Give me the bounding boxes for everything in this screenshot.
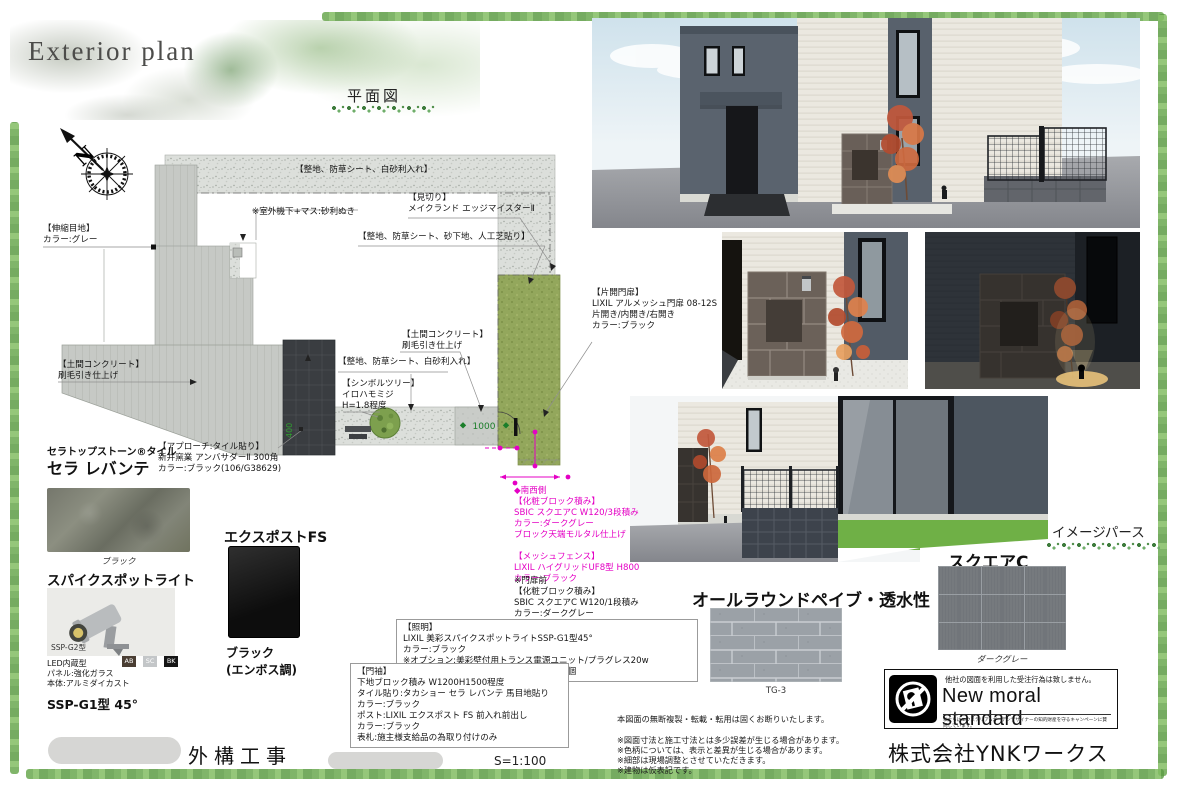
symbol-tree xyxy=(370,408,400,438)
finish-chip-sc: SC xyxy=(143,656,157,667)
company-name: 株式会社YNKワークス xyxy=(888,738,1109,768)
annotation-concrete-left: 【土間コンクリート】 刷毛引き仕上げ xyxy=(58,360,144,382)
render-gate-day xyxy=(722,232,908,389)
render-side-yard xyxy=(630,396,1048,562)
plan-view-label: 平面図 xyxy=(347,85,401,106)
annotation-edging: 【見切り】 メイクランド エッジマイスターⅡ xyxy=(408,193,535,215)
perspective-label: イメージパース xyxy=(1052,521,1145,541)
finish-chip-bk: BK xyxy=(164,656,178,667)
frame-bottom xyxy=(26,769,1164,779)
compass-icon: N xyxy=(55,126,155,208)
postbox-color: ブラック (エンボス調) xyxy=(226,644,297,678)
redacted-client-name xyxy=(48,737,181,764)
annotation-turf: 【整地、防草シート、砂下地、人工芝貼り】 xyxy=(358,232,530,243)
exterior-plan-sheet: Exterior plan 平面図 N xyxy=(0,0,1183,803)
spotlight-name: スパイクスポットライト xyxy=(47,569,195,589)
paver-name: オールラウンドペイブ・透水性 xyxy=(692,586,930,611)
tile-color-caption: ブラック xyxy=(47,555,190,567)
project-title: 外構工事 xyxy=(188,740,292,769)
redacted-address xyxy=(328,752,443,769)
no-copy-icon xyxy=(889,675,937,723)
frame-left xyxy=(10,122,19,774)
annotation-expansion-joint: 【伸縮目地】 カラー:グレー xyxy=(43,224,97,246)
annotation-gravel-center: 【整地、防草シート、白砂利入れ】 xyxy=(338,357,475,368)
spotlight-finish-chips: AB SC BK xyxy=(122,656,180,675)
moral-subtitle: 私たちはエクステリア&ガーデンデザイナーの知的財産を守るキャンペーンに賛同してい… xyxy=(943,714,1111,729)
paver-color-caption: TG-3 xyxy=(710,686,842,696)
annotation-gate-wall: 【門袖】 下地ブロック積み W1200H1500程度 タイル貼り:タカショー セ… xyxy=(350,663,569,748)
svg-text:1000: 1000 xyxy=(473,422,496,432)
page-title: Exterior plan xyxy=(28,36,196,67)
frame-right xyxy=(1158,14,1167,776)
annotation-ac-unit: ※室外機下+マス:砂利ぬき xyxy=(252,207,355,218)
block-sample-image xyxy=(938,566,1066,650)
annotation-symbol-tree: 【シンボルツリー】 イロハモミジ H=1.8程度 xyxy=(342,379,419,412)
entry-step xyxy=(345,426,371,432)
dimension-400: 400 xyxy=(285,423,294,438)
footer-notes: 本図面の無断複製・転載・転用は固くお断りいたします。 ※図面寸法と施工寸法とは多… xyxy=(617,714,844,776)
annotation-concrete-center: 【土間コンクリート】 刷毛引き仕上げ xyxy=(402,330,488,352)
annotation-gravel-top: 【整地、防草シート、白砂利入れ】 xyxy=(295,165,432,176)
finish-chip-ab: AB xyxy=(122,656,136,667)
render-gate-night xyxy=(925,232,1140,389)
leaf-garland-icon xyxy=(1045,540,1160,552)
postbox-name: エクスポストFS xyxy=(224,527,327,547)
moral-standard-box: 他社の図面を利用した受注行為は致しません。 New moral standard… xyxy=(884,669,1118,729)
concrete-column-a xyxy=(155,165,197,247)
block-color-caption: ダークグレー xyxy=(938,653,1066,665)
render-front-perspective xyxy=(592,18,1140,228)
paver-sample-image xyxy=(710,608,842,682)
postbox-image xyxy=(228,546,300,638)
moral-caption: 他社の図面を利用した受注行為は致しません。 xyxy=(945,675,1096,685)
spotlight-model: SSP-G1型 45° xyxy=(47,694,138,713)
ac-unit xyxy=(233,248,242,257)
scale-label: S=1:100 xyxy=(494,754,546,768)
annotation-gate: 【片開門扉】 LIXIL アルメッシュ門扉 08-12S 片開き/内開き/右開き… xyxy=(592,288,717,332)
tile-name: セラ レバンテ xyxy=(47,455,149,479)
annotation-southwest: ◆南西側 【化粧ブロック積み】 SBIC スクエアC W120/3段積み カラー… xyxy=(514,486,639,585)
spotlight-photo-model: SSP-G2型 xyxy=(51,642,86,653)
spotlight-specs: LED内蔵型 パネル:強化ガラス 本体:アルミダイカスト xyxy=(47,659,130,690)
gate-leaf xyxy=(514,418,518,436)
tile-sample-image xyxy=(47,488,190,552)
lawn-area xyxy=(498,275,560,465)
svg-text:N: N xyxy=(70,141,100,171)
spotlight-photo: SSP-G2型 xyxy=(47,588,175,656)
